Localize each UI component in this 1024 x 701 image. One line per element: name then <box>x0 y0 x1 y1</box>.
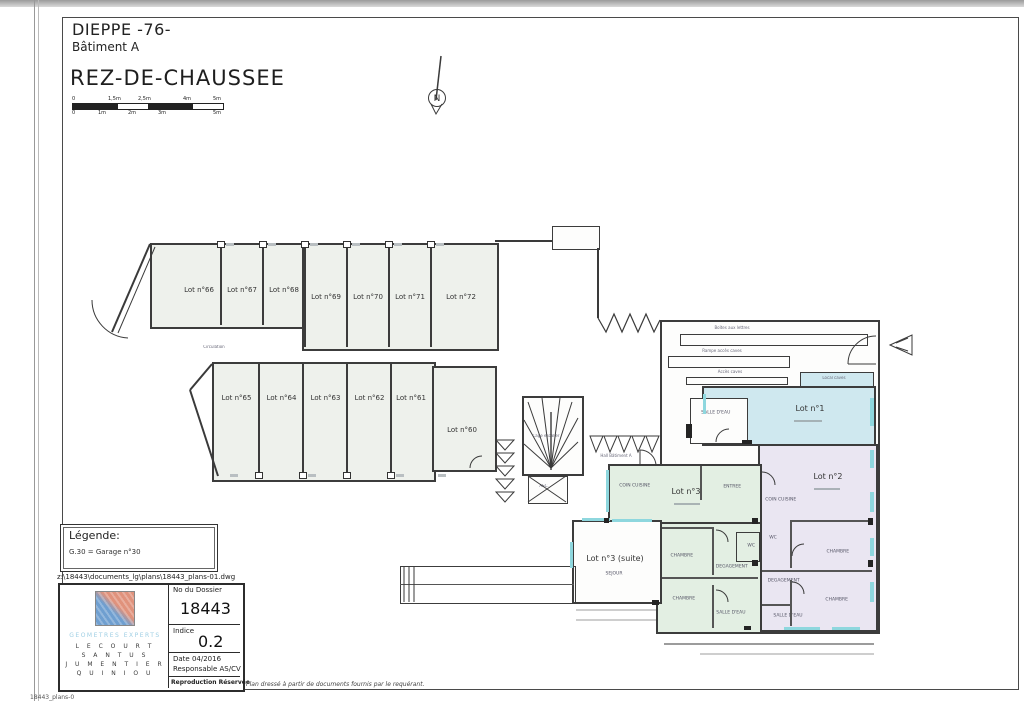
surveyor-logo <box>95 591 135 626</box>
dossier-label: No du Dossier <box>173 586 222 594</box>
indice-label: Indice <box>173 627 194 635</box>
date-value: Date 04/2016 <box>173 655 221 663</box>
responsable-value: Responsable AS/CV <box>173 665 241 673</box>
partner-name: S A N T U S <box>62 652 168 659</box>
footer-note: Plan dressé à partir de documents fourni… <box>246 681 424 688</box>
north-letter: N <box>434 94 441 104</box>
legend-entry: G.30 = Garage n°30 <box>69 548 141 556</box>
corner-scrap-text: 18443_plans-0 <box>30 694 74 701</box>
partner-name: Q U I N I O U <box>62 670 168 677</box>
title-block-line <box>169 652 240 653</box>
scanned-floor-plan-page: DIEPPE -76- Bâtiment A REZ-DE-CHAUSSEE 0… <box>0 0 1024 701</box>
indice-value: 0.2 <box>198 632 223 651</box>
dossier-number: 18443 <box>180 599 231 618</box>
partner-name: L E C O U R T <box>62 643 168 650</box>
title-block-line <box>169 624 240 625</box>
file-path: z:\18443\documents_lg\plans\18443_plans-… <box>57 573 235 581</box>
reproduction-notice: Reproduction Réservée <box>171 679 250 686</box>
partner-name: J U M E N T I E R <box>62 661 168 668</box>
title-block-divider <box>168 583 169 688</box>
firm-name: GEOMETRES EXPERTS <box>62 632 168 639</box>
title-block-line <box>169 676 240 677</box>
legend-title: Légende: <box>69 529 120 542</box>
